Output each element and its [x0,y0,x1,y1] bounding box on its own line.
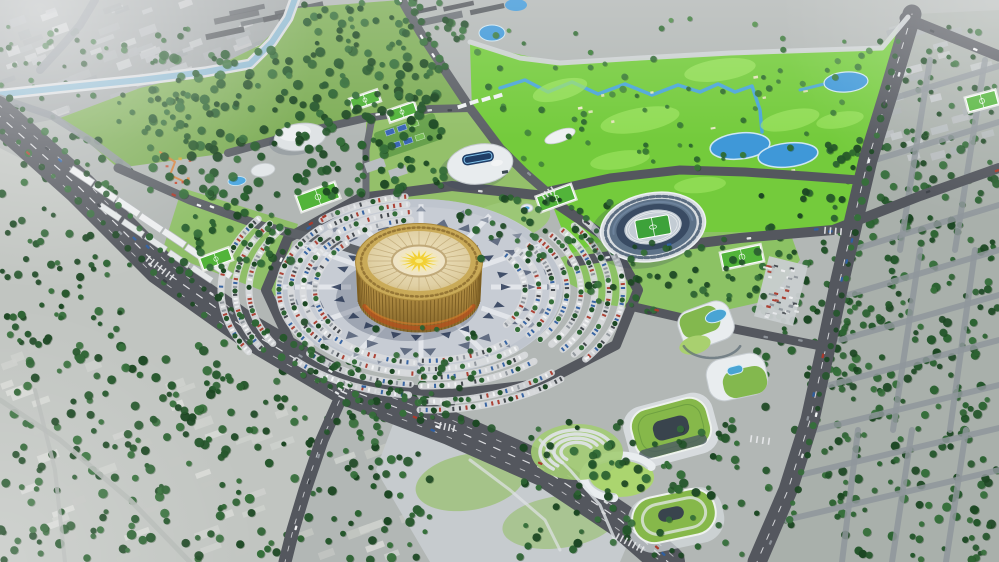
masterplan-aerial-render [0,0,999,562]
masterplan-render-figure [0,0,999,562]
arena-sun-core [415,259,423,263]
